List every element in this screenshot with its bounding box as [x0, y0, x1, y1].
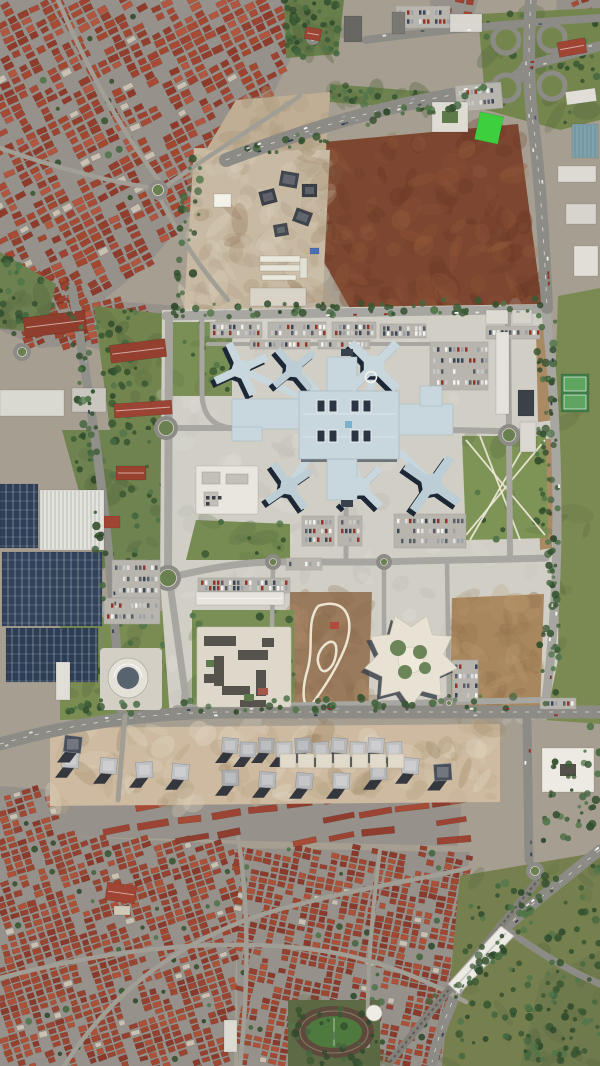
site-barrack-2	[260, 265, 300, 271]
site-barrack-1	[260, 256, 300, 262]
hospital-wing	[398, 404, 453, 435]
hospital-wing	[232, 427, 262, 441]
clinic-long-building	[196, 592, 284, 605]
campus-ne-white-2	[512, 310, 532, 324]
cloverleaf-loop	[493, 27, 519, 53]
solar-roof-building-3	[6, 628, 98, 682]
vehicle	[214, 714, 218, 716]
vehicle	[548, 275, 550, 279]
foundation-slab	[388, 754, 404, 768]
vehicle	[455, 312, 459, 314]
vehicle	[550, 402, 552, 406]
institute-southeast	[542, 748, 594, 792]
circular-plaza-building	[100, 648, 162, 710]
office-white-west	[56, 662, 70, 700]
parking-lot	[332, 322, 376, 338]
foundation-slab	[316, 754, 332, 768]
vehicle	[529, 749, 531, 753]
hospital-center-atrium	[345, 421, 352, 428]
solar-roof-building-2	[2, 552, 102, 626]
construction-dark-2	[279, 171, 299, 189]
industrial-hall-ribbed	[40, 490, 104, 550]
road-campus-west	[168, 316, 169, 575]
industrial-east-4	[574, 246, 598, 276]
parking-lot	[338, 516, 362, 546]
satellite-map-view	[0, 0, 600, 1066]
campus-east-dark	[518, 390, 534, 416]
foundation-slab	[334, 754, 350, 768]
parking-lot	[486, 326, 540, 339]
cloverleaf-loop	[539, 73, 565, 99]
vehicle	[113, 591, 115, 595]
white-slab-south	[224, 1020, 237, 1052]
campus-east-white	[520, 422, 536, 452]
parking-lot	[380, 324, 426, 338]
industrial-east-2	[558, 166, 596, 182]
vehicle	[336, 708, 340, 710]
roundabout	[498, 424, 520, 446]
vehicle	[474, 714, 478, 716]
foundation-slab	[352, 754, 368, 768]
foundation-slab	[298, 754, 314, 768]
parking-lot	[198, 578, 290, 593]
site-barrack-4	[300, 258, 307, 278]
industrial-east-teal	[572, 124, 598, 158]
site-barrack-3	[262, 275, 296, 280]
site-blue	[310, 248, 319, 254]
vehicle	[112, 629, 114, 633]
psych-roof-bar	[222, 686, 250, 695]
vehicle	[524, 761, 526, 765]
mall-north-building	[450, 14, 482, 32]
warehouse-white-1	[0, 390, 64, 416]
parking-lot	[104, 598, 160, 624]
vehicle	[558, 484, 560, 488]
roundabout	[13, 343, 31, 361]
vehicle	[541, 180, 543, 184]
red-roof-north	[304, 27, 322, 42]
mall-tower-1	[344, 16, 362, 42]
parking-lot	[286, 558, 322, 570]
hospital-wing	[232, 399, 300, 429]
construction-dark-5	[273, 223, 289, 237]
psych-roof-bar	[204, 674, 216, 683]
red-court-pad	[330, 622, 339, 629]
solar-roof-building-1	[0, 484, 38, 548]
vehicle	[530, 841, 532, 845]
parking-lot	[430, 342, 488, 390]
vehicle	[555, 612, 557, 616]
vehicle	[548, 282, 550, 286]
vehicle	[328, 708, 332, 710]
parking-lot	[268, 322, 326, 338]
psychiatric-hospital	[197, 627, 291, 707]
vehicle	[250, 708, 254, 710]
vehicle	[549, 637, 551, 641]
parking-lot	[302, 516, 334, 546]
road-inner-447	[447, 562, 449, 700]
roundabout	[148, 180, 168, 200]
field-brown-large	[303, 113, 553, 320]
site-tent	[214, 194, 231, 207]
entrance-canopy	[341, 500, 353, 507]
vehicle	[525, 61, 527, 65]
vehicle	[353, 314, 357, 316]
psych-roof-bar	[238, 650, 268, 660]
parking-lot	[210, 322, 262, 338]
vehicle	[114, 602, 116, 606]
vehicle	[554, 714, 558, 716]
energy-plant	[196, 466, 258, 514]
vehicle	[530, 853, 532, 857]
satellite-image	[0, 0, 600, 1066]
dome-hall	[366, 1005, 382, 1021]
parking-lot	[394, 514, 466, 548]
vehicle	[532, 148, 534, 152]
industrial-east-3	[566, 204, 596, 224]
roundabout	[265, 554, 281, 570]
vehicle	[552, 358, 554, 362]
road-south-connector	[527, 718, 529, 860]
vehicle	[467, 29, 471, 31]
vehicle	[314, 714, 318, 716]
construction-dark-3	[302, 184, 317, 197]
psych-roof-bar	[240, 700, 266, 707]
parking-lot	[318, 340, 370, 349]
vehicle	[326, 314, 330, 316]
school-red	[105, 882, 137, 904]
vehicle	[547, 271, 549, 275]
school-court	[114, 906, 130, 915]
factory-red-small	[116, 466, 146, 480]
vehicle	[547, 257, 549, 261]
foundation-slab	[280, 754, 296, 768]
roundabout	[154, 416, 178, 440]
psych-roof-bar	[262, 638, 274, 647]
vehicle	[516, 311, 520, 313]
vehicle	[470, 708, 474, 710]
vehicle	[506, 708, 510, 710]
mall-tower-2	[392, 12, 405, 34]
vehicle	[384, 313, 388, 315]
vehicle	[551, 603, 553, 607]
sports-courts-east	[561, 374, 589, 412]
campus-ne-white-1	[486, 310, 508, 324]
foundation-slab	[370, 754, 386, 768]
entrance-canopy	[341, 349, 353, 356]
vehicle	[538, 23, 542, 25]
vehicle	[187, 709, 191, 711]
hospital-wing	[420, 386, 442, 406]
vehicle	[475, 312, 479, 314]
roundabout	[376, 554, 392, 570]
parking-lot	[112, 560, 160, 598]
psych-roof-bar	[204, 636, 236, 646]
campus-long-building	[496, 332, 509, 414]
vehicle	[138, 713, 142, 715]
